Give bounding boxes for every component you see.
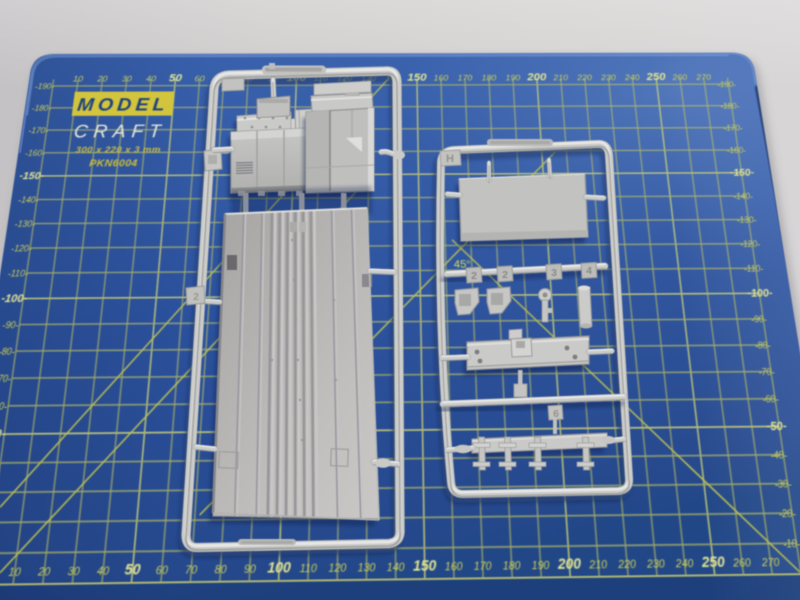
svg-text:6: 6 — [553, 408, 559, 420]
svg-text:2: 2 — [193, 291, 199, 303]
svg-text:4: 4 — [586, 265, 592, 277]
svg-text:H: H — [446, 153, 454, 165]
svg-text:3: 3 — [551, 267, 557, 279]
svg-text:2: 2 — [502, 269, 508, 281]
svg-text:2: 2 — [471, 270, 477, 282]
